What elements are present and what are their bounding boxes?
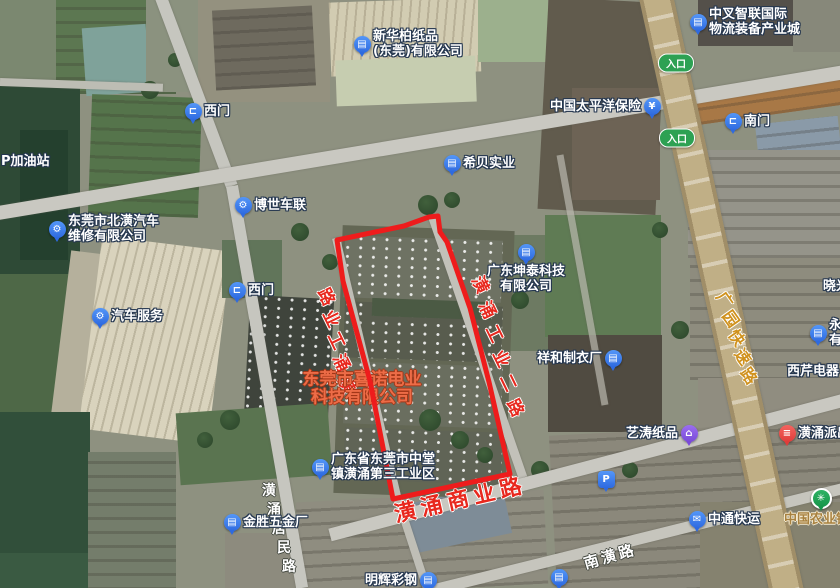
poi-label: 西门: [248, 283, 274, 298]
building-icon: ▤: [810, 325, 827, 342]
building-icon: ▤: [420, 572, 437, 588]
poi-label: 明辉彩钢: [365, 573, 417, 588]
poi-label: 晓光: [823, 279, 840, 294]
building-icon: ▤: [690, 14, 707, 31]
poi-label: 中叉智联国际物流装备产业城: [709, 7, 800, 37]
poi-label: 祥和制衣厂: [537, 351, 602, 366]
poi-label: 博世车联: [254, 198, 306, 213]
bank-icon: ✳: [811, 488, 832, 509]
car-icon: ⚙: [92, 308, 109, 325]
poi-label: 西芹电器: [787, 364, 839, 379]
building-icon: ▤: [224, 514, 241, 531]
truck-icon: ✉: [689, 511, 706, 528]
poi-label: 新华柏纸品(东莞)有限公司: [373, 29, 463, 59]
car-icon: ⚙: [49, 221, 66, 238]
poi-label: 东莞市北潢汽车维修有限公司: [68, 214, 159, 244]
poi-label: 潢涌派出所: [798, 426, 840, 441]
shop-icon: ⌂: [681, 425, 698, 442]
poi-label: 广东坤泰科技有限公司: [466, 264, 586, 294]
poi-label: 中国太平洋保险: [550, 99, 641, 114]
poi-label: 希贝实业: [463, 156, 515, 171]
building-icon: ▤: [354, 36, 371, 53]
poi-label: 金胜五金厂: [243, 515, 308, 530]
poi-label: 西门: [204, 104, 230, 119]
building-icon: ▤: [444, 155, 461, 172]
poi-label: 南门: [744, 114, 770, 129]
gate-icon: ⊏: [725, 113, 742, 130]
building-icon: ▤: [605, 350, 622, 367]
poi-label: 汽车服务: [111, 309, 163, 324]
poi-label: 广东省东莞市中堂镇潢涌第三工业区: [331, 452, 435, 482]
money-icon: ¥: [644, 98, 661, 115]
building-icon: ▤: [312, 459, 329, 476]
parking-icon: P: [598, 471, 615, 488]
poi-label: 永有: [829, 318, 840, 348]
car-icon: ⚙: [235, 197, 252, 214]
building-icon: ▤: [551, 569, 568, 586]
poi-label: P加油站: [1, 154, 50, 169]
police-icon: ≡: [779, 425, 796, 442]
poi-markers: ▤新华柏纸品(东莞)有限公司▤中叉智联国际物流装备产业城¥中国太平洋保险⊏南门⊏…: [0, 0, 840, 588]
poi-label: 中通快运: [708, 512, 760, 527]
building-icon: ▤: [518, 244, 535, 261]
satellite-map-canvas[interactable]: 路业工涌潢潢涌工业二路潢涌商业路广园快速路南潢路潢涌居民路 东莞市喜诺电业 科技…: [0, 0, 840, 588]
poi-label: 中国农业银行: [784, 512, 840, 527]
gate-icon: ⊏: [185, 103, 202, 120]
gate-icon: ⊏: [229, 282, 246, 299]
poi-label: 艺涛纸品: [626, 426, 678, 441]
